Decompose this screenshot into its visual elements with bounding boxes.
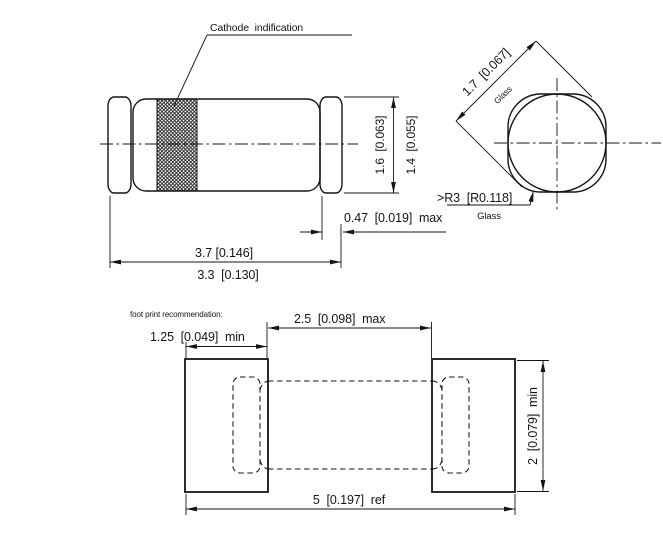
cathode-band bbox=[157, 99, 197, 191]
dim-length-overall: 3.7 [0.146] bbox=[195, 246, 253, 260]
pad-gap-dimension bbox=[268, 322, 432, 358]
cathode-indication-label: Cathode indification bbox=[210, 22, 303, 34]
dim-radius: >R3 [R0.118] bbox=[437, 191, 512, 205]
left-pad bbox=[185, 359, 268, 492]
cathode-leader bbox=[174, 35, 352, 106]
glass-note-diagonal: Glass bbox=[492, 84, 514, 106]
left-end-cap bbox=[108, 97, 131, 193]
dim-glass-diameter: 1.4 [0.055] bbox=[404, 116, 418, 175]
diameter-dimension bbox=[344, 97, 399, 193]
dim-total-length: 5 [0.197] ref bbox=[313, 493, 386, 507]
dim-cap-diameter: 1.6 [0.063] bbox=[373, 116, 387, 175]
dim-pad-gap: 2.5 [0.098] max bbox=[294, 312, 386, 326]
cap-width-dimension bbox=[300, 196, 446, 268]
diode-package-drawing-page: Cathode indification 1.6 [0.063] 1.4 [0.… bbox=[0, 0, 663, 537]
diagonal-dimension bbox=[456, 41, 592, 187]
right-end-cap bbox=[320, 97, 342, 193]
glass-note-radius: Glass bbox=[477, 211, 501, 222]
footprint-view: foot print recommendation: 1.25 [0.049] … bbox=[130, 310, 549, 515]
dim-length-body: 3.3 [0.130] bbox=[197, 268, 258, 282]
dim-pad-width: 1.25 [0.049] min bbox=[150, 330, 245, 344]
technical-drawing-svg: Cathode indification 1.6 [0.063] 1.4 [0.… bbox=[0, 0, 663, 537]
end-view: 1.7 [0.067] Glass >R3 [R0.118] Glass bbox=[437, 41, 661, 222]
side-view: Cathode indification 1.6 [0.063] 1.4 [0.… bbox=[100, 22, 446, 282]
dim-pad-height: 2 [0.079] min bbox=[526, 387, 540, 465]
footprint-note: foot print recommendation: bbox=[130, 310, 223, 319]
dim-cap-width: 0.47 [0.019] max bbox=[344, 211, 443, 225]
